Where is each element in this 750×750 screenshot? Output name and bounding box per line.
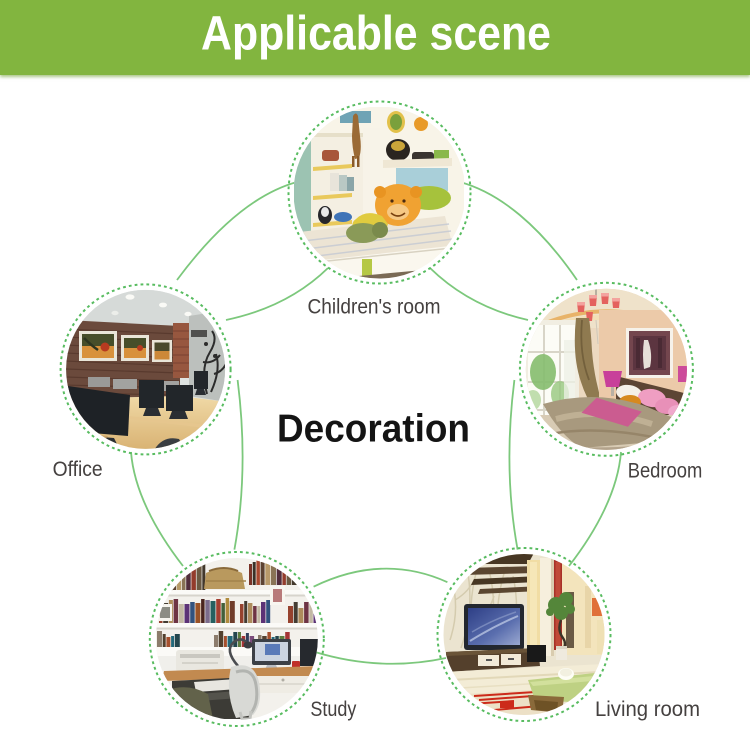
svg-text:Office: Office [53, 458, 103, 481]
svg-text:Bedroom: Bedroom [628, 459, 703, 482]
svg-text:Living room: Living room [595, 698, 700, 721]
svg-text:Applicable scene: Applicable scene [201, 8, 551, 61]
svg-text:Decoration: Decoration [277, 408, 470, 451]
svg-text:Study: Study [310, 698, 356, 721]
svg-text:Children's room: Children's room [308, 296, 441, 319]
